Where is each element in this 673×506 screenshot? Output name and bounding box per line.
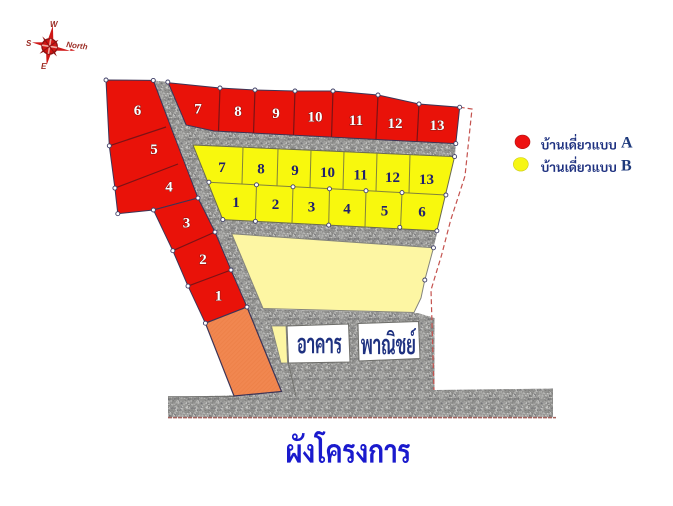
svg-text:3: 3 — [183, 215, 191, 231]
svg-text:8: 8 — [257, 161, 265, 177]
svg-text:5: 5 — [150, 142, 158, 158]
svg-text:9: 9 — [272, 106, 280, 122]
svg-text:1: 1 — [215, 288, 223, 304]
svg-text:4: 4 — [165, 179, 173, 195]
svg-text:7: 7 — [218, 160, 226, 176]
svg-text:9: 9 — [291, 163, 299, 179]
svg-text:12: 12 — [388, 116, 403, 132]
svg-text:11: 11 — [353, 167, 367, 183]
svg-text:13: 13 — [430, 118, 445, 134]
svg-text:E: E — [41, 62, 47, 71]
svg-text:13: 13 — [419, 172, 434, 188]
svg-text:2: 2 — [272, 197, 280, 213]
svg-text:1: 1 — [232, 195, 240, 211]
svg-text:6: 6 — [418, 204, 426, 220]
svg-text:7: 7 — [194, 101, 202, 117]
svg-text:8: 8 — [234, 104, 242, 120]
svg-text:6: 6 — [134, 103, 142, 119]
svg-text:B: B — [621, 158, 632, 175]
svg-text:S: S — [26, 39, 32, 48]
svg-text:11: 11 — [349, 113, 363, 129]
svg-text:10: 10 — [320, 165, 335, 181]
svg-text:5: 5 — [381, 203, 389, 219]
svg-text:4: 4 — [343, 201, 351, 217]
svg-text:A: A — [621, 135, 633, 152]
svg-text:12: 12 — [385, 170, 400, 186]
svg-text:10: 10 — [308, 109, 323, 125]
svg-text:2: 2 — [199, 252, 207, 268]
svg-text:3: 3 — [308, 199, 316, 215]
